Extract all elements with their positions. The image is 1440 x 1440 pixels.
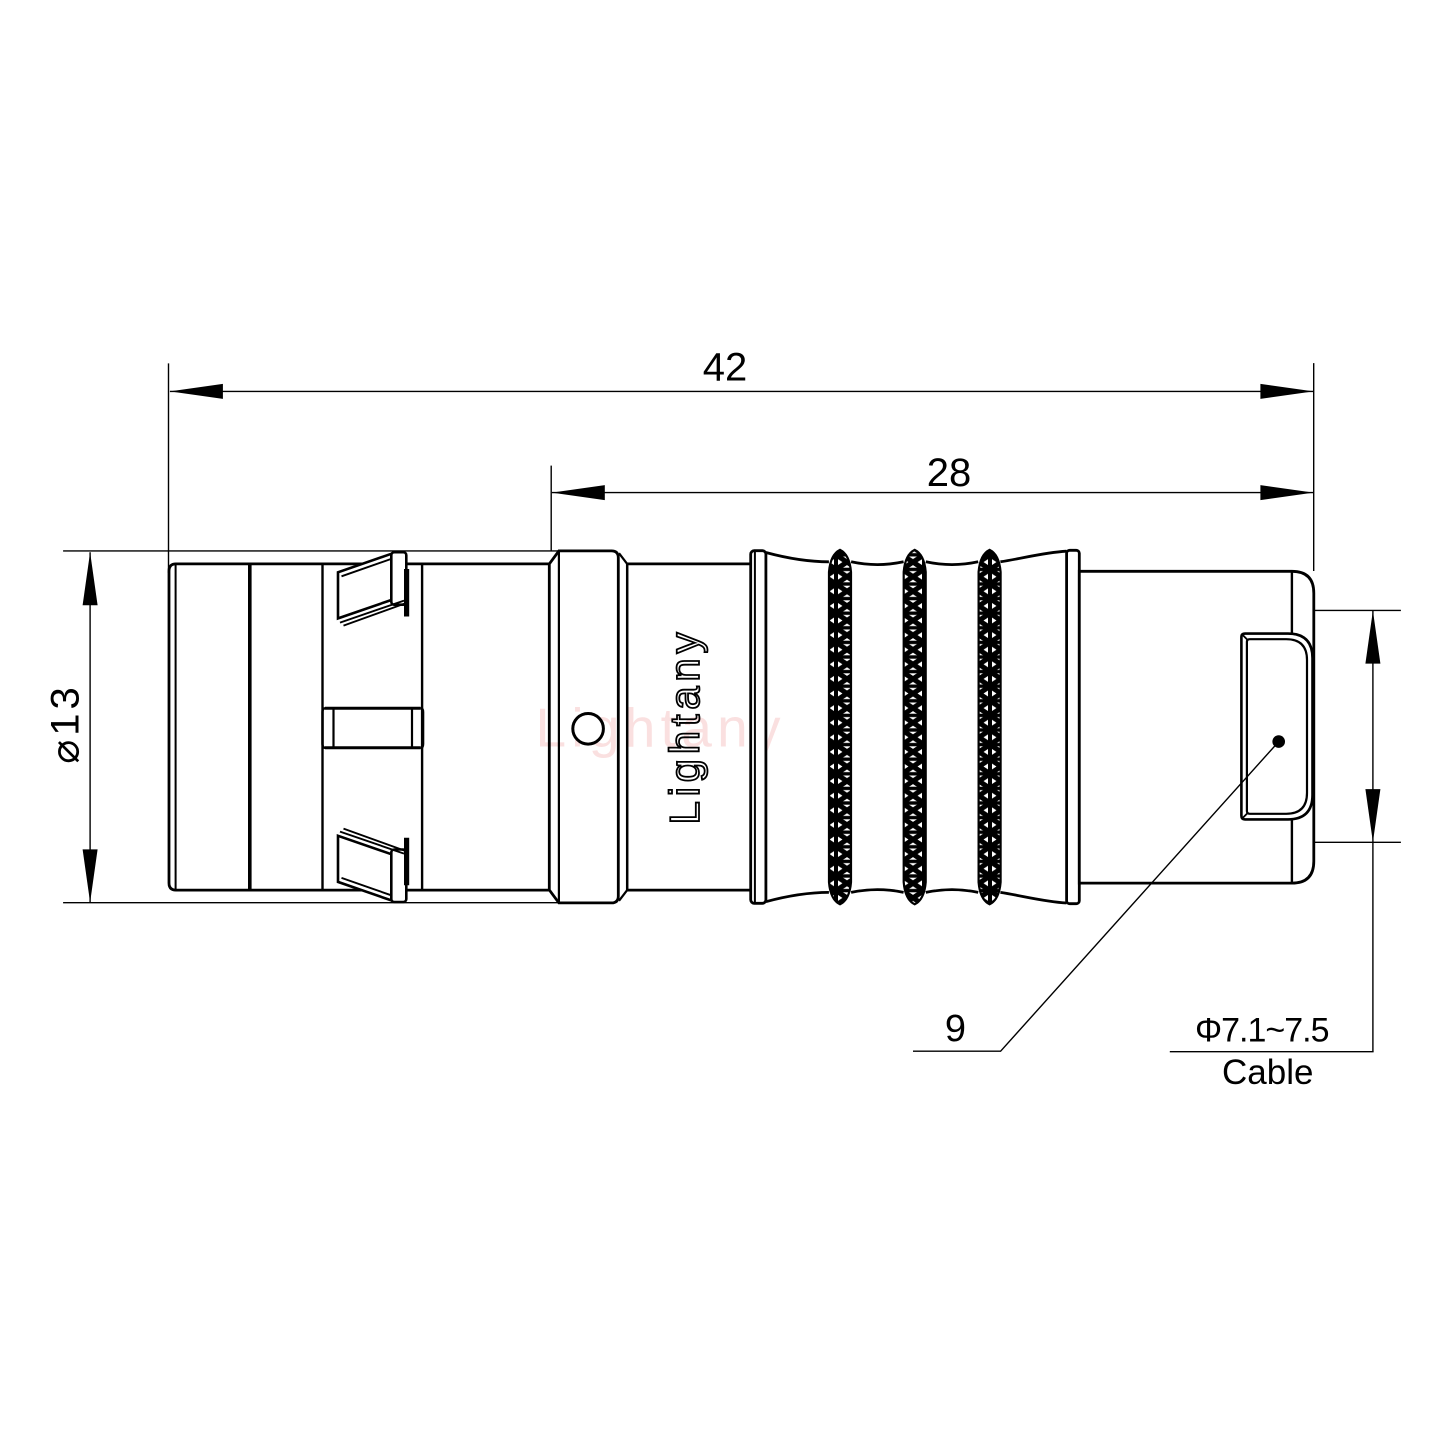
svg-text:Cable: Cable <box>1222 1053 1313 1092</box>
svg-text:28: 28 <box>927 451 972 495</box>
svg-text:Φ7.1~7.5: Φ7.1~7.5 <box>1195 1011 1329 1049</box>
svg-text:⌀13: ⌀13 <box>44 683 88 764</box>
svg-text:42: 42 <box>703 345 748 389</box>
svg-text:9: 9 <box>945 1008 966 1050</box>
